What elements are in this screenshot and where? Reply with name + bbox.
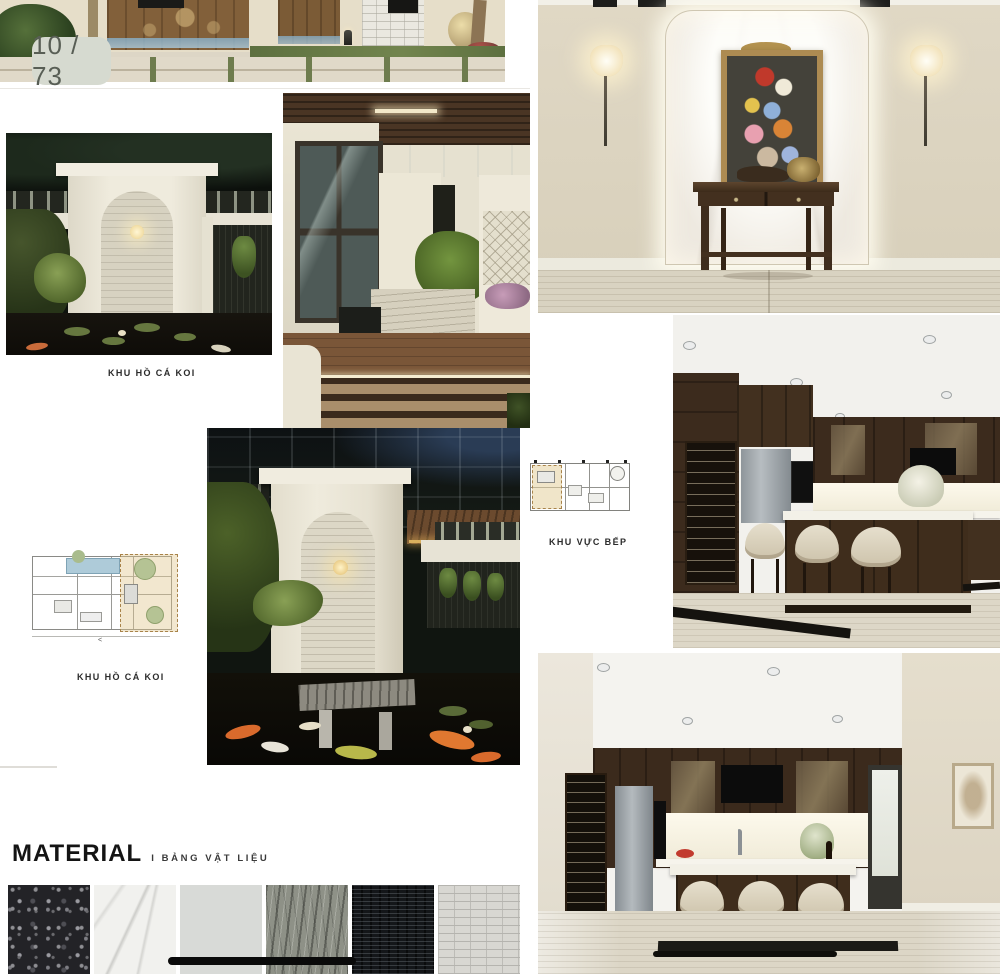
console-table-leg xyxy=(721,208,726,274)
swatch-black-speckled-granite xyxy=(8,885,90,974)
photo-caption: KHU HỒ CÁ KOI xyxy=(108,368,196,378)
console-hallway-photo[interactable] xyxy=(538,0,1000,313)
island-counter-top xyxy=(783,511,973,520)
recessed-light xyxy=(767,667,780,676)
plan-furniture-dining xyxy=(54,600,72,613)
stainless-fridge xyxy=(615,786,653,924)
recessed-light xyxy=(683,341,696,350)
plan-fixture xyxy=(568,485,582,496)
wall-sconce-left-stem xyxy=(604,76,607,146)
wall-ovens xyxy=(791,461,815,503)
wine-fridge xyxy=(685,441,737,585)
lotus-flower xyxy=(463,726,472,733)
kitchen-corner-photo[interactable] xyxy=(673,315,1000,648)
lily-pad xyxy=(439,706,467,716)
arch-wall-lamp xyxy=(333,560,348,575)
flower-vase xyxy=(898,465,944,507)
floor-plan-koi-zone[interactable]: < xyxy=(18,548,196,648)
range-hood xyxy=(721,765,783,803)
swatch-white-marble xyxy=(94,885,176,974)
floor-plan-kitchen-zone[interactable] xyxy=(524,455,636,518)
hanging-plant xyxy=(463,571,481,601)
grass-strip xyxy=(250,46,505,57)
plan-column-dot xyxy=(534,460,537,463)
plan-north-arrow: < xyxy=(98,638,106,644)
fence-flower-box xyxy=(485,283,530,309)
console-table-top xyxy=(693,182,839,192)
page-edge-line xyxy=(0,88,530,89)
lily-pad xyxy=(134,323,160,332)
material-title: MATERIAL xyxy=(12,840,142,868)
plan-tree-circle xyxy=(134,558,156,580)
console-table-leg xyxy=(701,206,709,278)
console-table-leg xyxy=(806,208,811,274)
right-white-pillar xyxy=(202,217,213,313)
framed-artwork xyxy=(952,763,994,829)
pond-water xyxy=(6,313,272,355)
wall-sconce-right-shade xyxy=(910,45,943,77)
side-door-glass-band xyxy=(278,36,340,44)
glass-cabinet-door xyxy=(831,425,865,475)
right-wall-trim xyxy=(421,540,520,562)
plan-tree-circle xyxy=(146,606,164,624)
left-window xyxy=(295,141,383,323)
recessed-light xyxy=(682,717,693,725)
lit-bush xyxy=(34,253,86,303)
corner-plant xyxy=(507,393,530,428)
page-edge-line xyxy=(0,766,57,768)
ceiling-vent xyxy=(593,0,617,7)
dark-floor-band xyxy=(653,951,837,957)
kitchen-front-photo[interactable] xyxy=(538,653,1000,974)
plan-column-dot xyxy=(558,460,561,463)
material-subtitle: I BẢNG VẬT LIỆU xyxy=(151,853,269,864)
document-viewer: 10 / 73 KHU HỒ CÁ KOI xyxy=(0,0,1000,974)
left-tree-mass xyxy=(207,482,279,652)
material-heading: MATERIAL I BẢNG VẬT LIỆU xyxy=(12,840,269,868)
bar-stool-seat xyxy=(745,523,785,559)
ceiling-vent xyxy=(860,0,890,7)
kitchen-faucet xyxy=(738,829,742,855)
hanging-plant xyxy=(439,568,457,598)
home-indicator-bar[interactable] xyxy=(168,957,356,965)
swatch-grey-brick-tile xyxy=(438,885,520,974)
island-counter-top xyxy=(670,865,856,875)
recessed-light xyxy=(832,715,843,723)
swatch-black-slate-ledger xyxy=(352,885,434,974)
gate-header-vent xyxy=(138,0,184,8)
lily-pad xyxy=(469,720,493,729)
recessed-light xyxy=(923,335,936,344)
lower-cabinet-right xyxy=(968,520,1000,580)
console-table-apron xyxy=(698,192,834,206)
plan-spiral-stair xyxy=(610,466,625,481)
koi-pond-day-photo[interactable] xyxy=(6,133,272,355)
tile-panel-window xyxy=(388,0,418,13)
wall-ovens xyxy=(654,801,666,859)
island-kick-shadow xyxy=(658,941,899,951)
upper-cabinets-mid xyxy=(737,385,813,447)
photo-caption: KHU VỰC BẾP xyxy=(549,537,627,547)
plan-column-dot xyxy=(582,460,585,463)
recessed-light xyxy=(597,663,610,672)
table-floor-reflection xyxy=(723,272,813,280)
console-table-leg xyxy=(824,206,832,278)
recessed-light xyxy=(941,391,952,399)
console-table-shelf xyxy=(701,252,832,257)
gate-glass-band xyxy=(107,38,249,48)
plan-furniture-sofa xyxy=(80,612,102,622)
white-curb xyxy=(283,345,321,428)
lily-pad xyxy=(64,327,90,336)
stone-bench-leg xyxy=(379,712,392,750)
fruit-bowl xyxy=(676,849,694,858)
photo-caption: KHU HỒ CÁ KOI xyxy=(77,672,165,682)
ornate-clock xyxy=(787,157,820,182)
ceiling-vent xyxy=(638,0,666,7)
window-glass xyxy=(872,770,898,876)
side-hallway-photo[interactable] xyxy=(283,93,530,428)
glass-cabinet-door xyxy=(671,761,715,813)
koi-pond-night-photo[interactable] xyxy=(207,428,520,765)
page-indicator-text: 10 / 73 xyxy=(32,30,111,92)
bollard-lamp xyxy=(344,30,352,45)
monument-arch-niche xyxy=(101,191,173,319)
arch-wall-lamp xyxy=(130,225,144,239)
plan-fixture xyxy=(537,471,555,483)
wall-sconce-right-stem xyxy=(924,76,927,146)
ceiling-light-strip xyxy=(375,109,437,113)
plan-tree-top xyxy=(72,550,85,563)
lily-pad xyxy=(102,337,125,345)
monument-cornice xyxy=(259,468,411,484)
stone-bench-leg xyxy=(319,710,332,748)
lily-pad xyxy=(174,333,196,341)
lotus-flower xyxy=(118,330,126,336)
plan-column-dot xyxy=(606,460,609,463)
glass-cabinet-door xyxy=(796,761,848,813)
plan-fixture xyxy=(588,493,604,503)
black-floor-inlay xyxy=(963,582,1000,592)
hanging-plant xyxy=(487,573,504,601)
island-kick-shadow xyxy=(785,605,971,613)
plan-koi-pond-mark xyxy=(124,584,138,604)
horse-figurines xyxy=(737,166,789,182)
plan-column-dot xyxy=(624,460,627,463)
wall-sconce-left-shade xyxy=(590,45,623,77)
lattice-screen xyxy=(483,211,530,285)
page-indicator-pill: 10 / 73 xyxy=(32,37,111,85)
monument-cornice xyxy=(56,163,218,176)
hanging-plant xyxy=(232,236,256,278)
